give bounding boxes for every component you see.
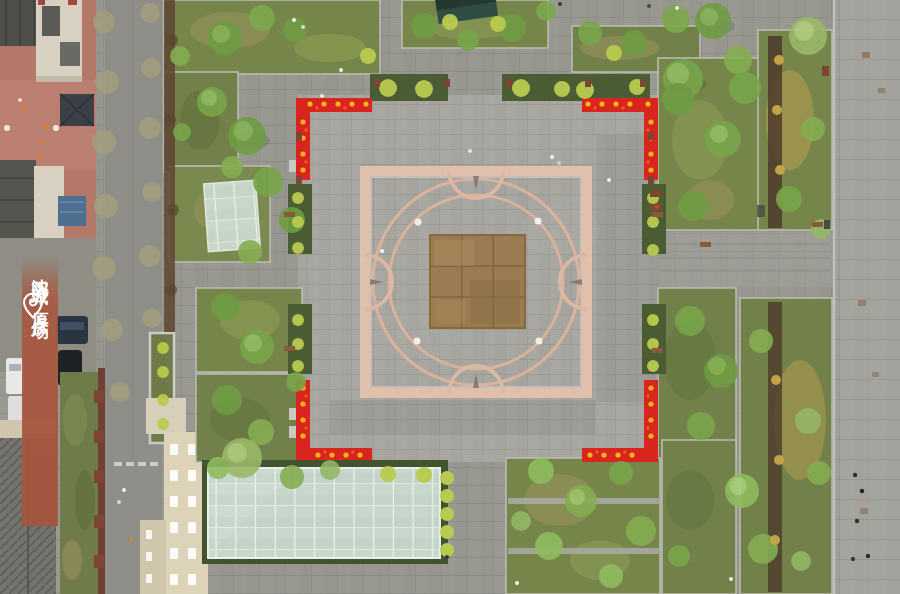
aerial-photo (0, 0, 900, 594)
road-right (833, 0, 900, 594)
screenshot: 沈阳方城·原点广场 (0, 0, 900, 594)
bronze-center-relief (430, 235, 525, 328)
location-banner: 沈阳方城·原点广场 (22, 256, 58, 526)
location-pin-icon (22, 292, 44, 319)
